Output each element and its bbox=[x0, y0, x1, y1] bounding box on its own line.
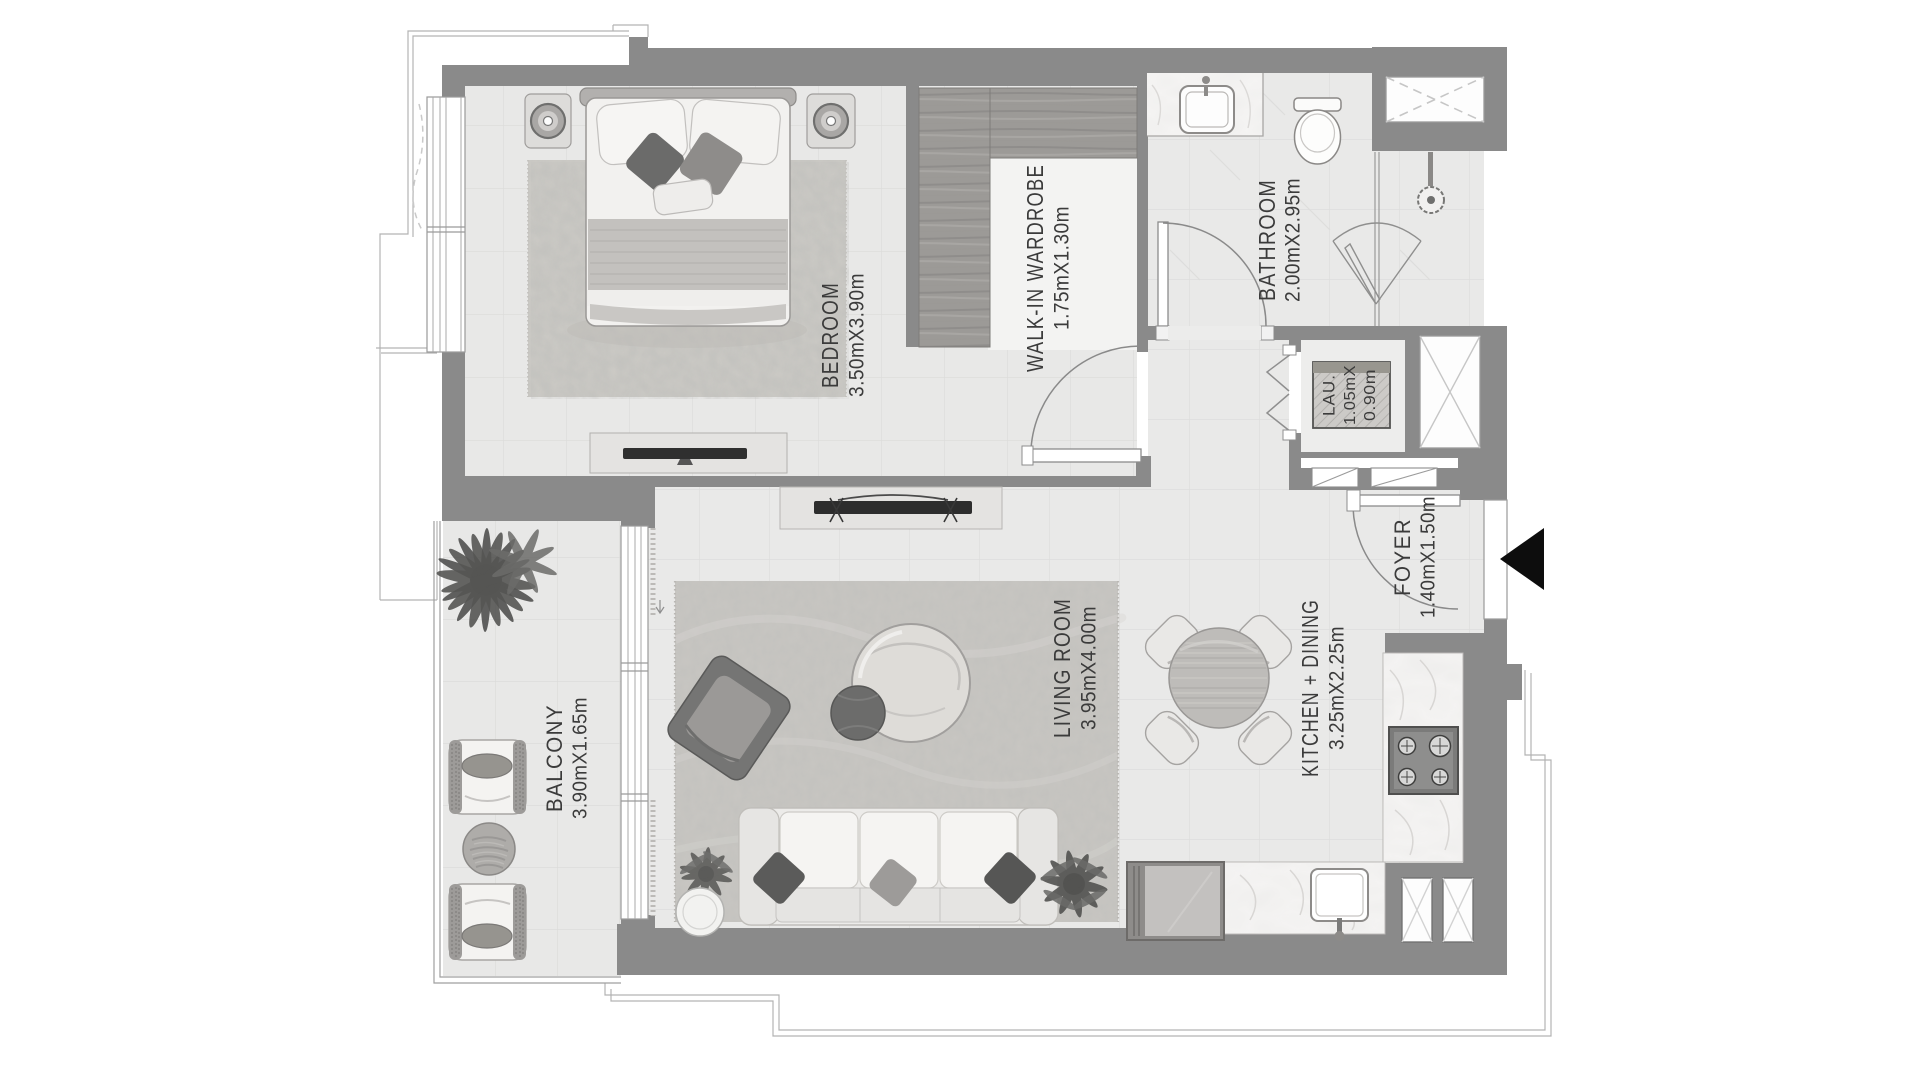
svg-text:KITCHEN + DINING: KITCHEN + DINING bbox=[1297, 599, 1323, 777]
svg-text:1.05mX: 1.05mX bbox=[1342, 365, 1359, 425]
svg-text:LAU.: LAU. bbox=[1319, 374, 1338, 416]
svg-text:3.25mX2.25m: 3.25mX2.25m bbox=[1326, 626, 1349, 750]
svg-text:BATHROOM: BATHROOM bbox=[1254, 179, 1280, 301]
svg-text:1.75mX1.30m: 1.75mX1.30m bbox=[1051, 206, 1074, 330]
svg-text:LIVING ROOM: LIVING ROOM bbox=[1049, 598, 1075, 738]
svg-text:FOYER: FOYER bbox=[1390, 518, 1415, 596]
svg-text:1.40mX1.50m: 1.40mX1.50m bbox=[1417, 496, 1439, 618]
svg-text:3.95mX4.00m: 3.95mX4.00m bbox=[1078, 606, 1101, 730]
svg-text:2.00mX2.95m: 2.00mX2.95m bbox=[1282, 178, 1305, 302]
svg-text:3.90mX1.65m: 3.90mX1.65m bbox=[569, 697, 591, 819]
svg-text:BALCONY: BALCONY bbox=[542, 704, 567, 812]
svg-text:0.90m: 0.90m bbox=[1362, 369, 1379, 421]
svg-text:3.50mX3.90m: 3.50mX3.90m bbox=[846, 273, 869, 397]
svg-text:WALK-IN WARDROBE: WALK-IN WARDROBE bbox=[1022, 164, 1048, 372]
svg-text:BEDROOM: BEDROOM bbox=[817, 282, 843, 388]
